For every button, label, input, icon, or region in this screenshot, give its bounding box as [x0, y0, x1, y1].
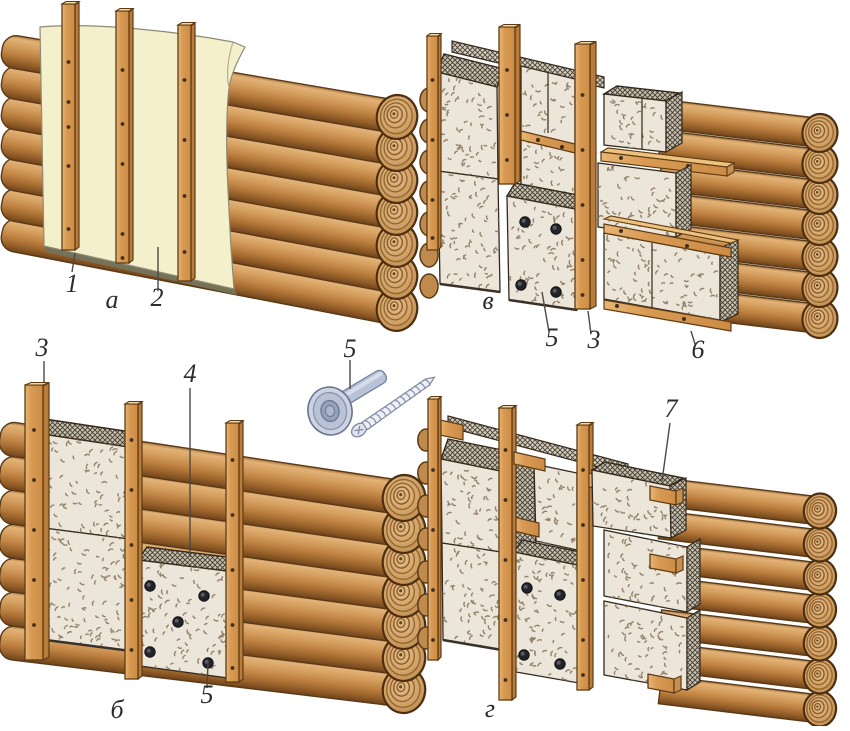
svg-text:2: 2 — [151, 283, 164, 312]
svg-text:6: 6 — [692, 335, 705, 364]
svg-text:3: 3 — [587, 325, 601, 354]
svg-text:а: а — [106, 285, 119, 314]
svg-text:г: г — [485, 694, 495, 723]
svg-text:4: 4 — [184, 359, 197, 388]
svg-text:7: 7 — [665, 394, 679, 423]
svg-text:б: б — [110, 695, 124, 724]
svg-text:1: 1 — [66, 269, 79, 298]
svg-text:3: 3 — [35, 333, 49, 362]
svg-text:5: 5 — [201, 680, 214, 709]
svg-text:5: 5 — [344, 334, 357, 363]
svg-text:в: в — [482, 286, 493, 315]
svg-text:5: 5 — [546, 323, 559, 352]
